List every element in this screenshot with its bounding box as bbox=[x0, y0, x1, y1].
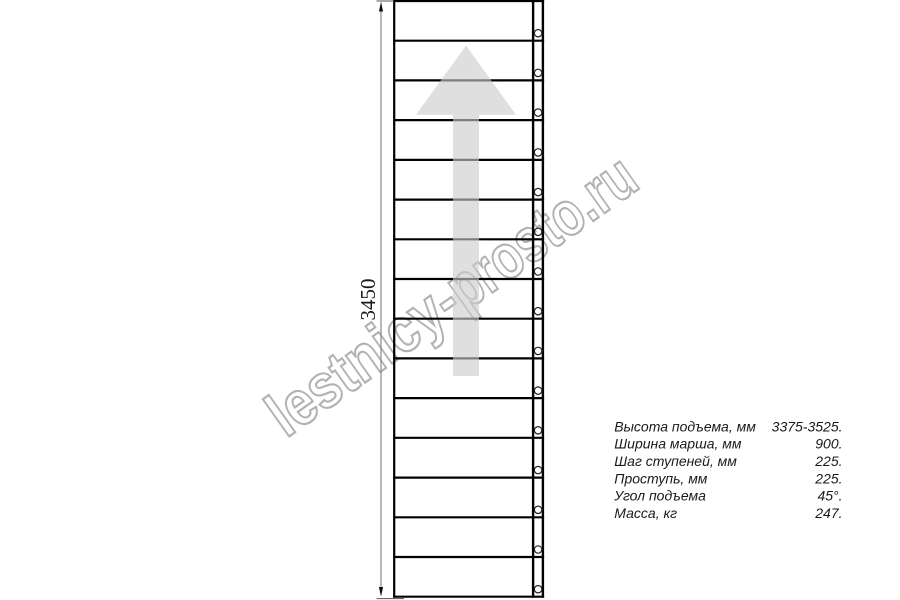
svg-text:3450: 3450 bbox=[356, 279, 380, 321]
svg-text:3375-3525.: 3375-3525. bbox=[772, 418, 843, 434]
svg-text:225.: 225. bbox=[814, 470, 842, 486]
svg-text:lestnicy-prosto.ru: lestnicy-prosto.ru bbox=[254, 141, 650, 450]
svg-text:Проступь, мм: Проступь, мм bbox=[614, 470, 708, 486]
svg-text:Высота подъема, мм: Высота подъема, мм bbox=[614, 418, 756, 434]
svg-text:Ширина марша, мм: Ширина марша, мм bbox=[614, 436, 742, 452]
svg-text:Шаг ступеней, мм: Шаг ступеней, мм bbox=[614, 453, 737, 469]
svg-text:45°.: 45°. bbox=[817, 488, 842, 504]
svg-text:900.: 900. bbox=[815, 436, 842, 452]
svg-text:247.: 247. bbox=[814, 505, 842, 521]
svg-text:Масса, кг: Масса, кг bbox=[614, 505, 677, 521]
svg-text:225.: 225. bbox=[814, 453, 842, 469]
svg-text:Угол подъема: Угол подъема bbox=[613, 488, 706, 504]
